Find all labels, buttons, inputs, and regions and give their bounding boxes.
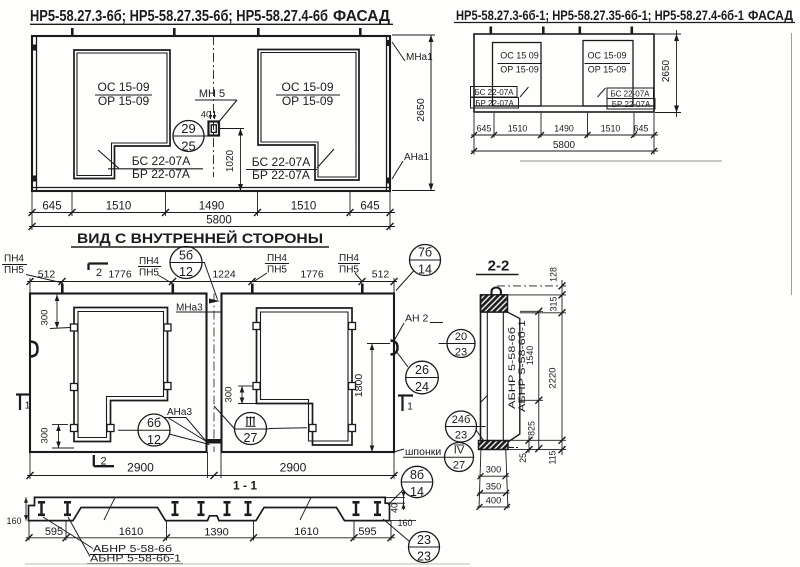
svg-text:ОР 15-09: ОР 15-09 — [588, 65, 627, 75]
svg-text:595: 595 — [358, 526, 376, 538]
svg-text:ПН5: ПН5 — [139, 268, 159, 279]
svg-text:АБНР 5-58-6б: АБНР 5-58-6б — [507, 327, 517, 409]
svg-text:40: 40 — [390, 503, 400, 513]
svg-text:128: 128 — [549, 267, 559, 282]
svg-text:ФАСАД: ФАСАД — [333, 8, 390, 25]
svg-text:НР5-58.27.3-6б-1; НР5-58.27.35: НР5-58.27.3-6б-1; НР5-58.27.35-6б-1; НР5… — [456, 7, 744, 23]
svg-text:1776: 1776 — [108, 269, 132, 281]
svg-text:БС 22-07А: БС 22-07А — [611, 90, 651, 99]
svg-text:29: 29 — [181, 121, 195, 136]
svg-text:АНа1: АНа1 — [404, 152, 429, 163]
svg-text:645: 645 — [634, 124, 649, 134]
svg-text:512: 512 — [372, 269, 390, 281]
svg-text:БС 22-07А: БС 22-07А — [475, 88, 515, 97]
svg-text:825: 825 — [527, 421, 537, 436]
svg-text:1020: 1020 — [225, 149, 236, 172]
svg-text:1610: 1610 — [294, 526, 318, 538]
svg-text:БР 22-07А: БР 22-07А — [612, 100, 651, 109]
svg-text:ПН5: ПН5 — [4, 265, 24, 276]
svg-text:МН 5: МН 5 — [199, 88, 225, 100]
svg-text:400: 400 — [486, 496, 502, 506]
svg-text:2650: 2650 — [661, 59, 672, 82]
svg-text:ПН5: ПН5 — [267, 265, 287, 276]
svg-text:5800: 5800 — [206, 215, 232, 227]
svg-text:300: 300 — [486, 465, 502, 475]
svg-text:350: 350 — [486, 482, 502, 492]
svg-text:АБНР 5-58-6б-1: АБНР 5-58-6б-1 — [90, 553, 182, 565]
svg-text:ОР 15-09: ОР 15-09 — [98, 94, 150, 108]
svg-text:26: 26 — [415, 363, 429, 377]
svg-text:115: 115 — [548, 450, 558, 464]
svg-text:14: 14 — [418, 263, 432, 277]
svg-text:ОС 15-09: ОС 15-09 — [281, 80, 333, 94]
svg-text:2-2: 2-2 — [488, 258, 510, 275]
svg-text:6б: 6б — [147, 416, 161, 430]
svg-text:ФАСАД: ФАСАД — [748, 7, 793, 23]
svg-text:1510: 1510 — [601, 124, 621, 134]
svg-text:2900: 2900 — [127, 461, 154, 475]
svg-text:160: 160 — [6, 516, 21, 526]
svg-text:АН 2: АН 2 — [405, 313, 429, 325]
svg-text:5б: 5б — [179, 249, 193, 263]
svg-text:645: 645 — [477, 124, 492, 134]
svg-text:645: 645 — [360, 201, 379, 213]
svg-text:IV: IV — [454, 445, 465, 457]
svg-text:БС 22-07А: БС 22-07А — [132, 154, 190, 168]
svg-text:2: 2 — [100, 456, 106, 468]
svg-text:315: 315 — [549, 297, 559, 312]
svg-text:1390: 1390 — [204, 527, 228, 539]
svg-text:300: 300 — [40, 310, 51, 326]
svg-text:ПН4: ПН4 — [139, 256, 159, 267]
svg-text:ОС 15-09: ОС 15-09 — [97, 80, 149, 94]
svg-text:ОС 15 09: ОС 15 09 — [500, 51, 539, 61]
svg-text:23: 23 — [455, 430, 467, 442]
svg-text:МНа1: МНа1 — [406, 52, 433, 63]
svg-text:7б: 7б — [418, 246, 432, 260]
svg-text:512: 512 — [38, 269, 56, 281]
svg-text:24б: 24б — [452, 414, 471, 426]
svg-text:1800: 1800 — [353, 374, 365, 398]
svg-text:27: 27 — [453, 460, 465, 472]
svg-text:1490: 1490 — [554, 124, 574, 134]
svg-text:БР 22-07А: БР 22-07А — [252, 168, 310, 182]
svg-text:III: III — [245, 415, 255, 429]
svg-text:1510: 1510 — [508, 124, 528, 134]
svg-text:1610: 1610 — [119, 526, 143, 538]
svg-text:ПН4: ПН4 — [4, 254, 24, 265]
svg-text:2220: 2220 — [548, 367, 559, 388]
svg-text:23: 23 — [455, 347, 467, 359]
svg-text:1776: 1776 — [300, 269, 324, 281]
svg-text:ОР 15-09: ОР 15-09 — [500, 65, 539, 75]
svg-text:5800: 5800 — [553, 140, 576, 151]
svg-text:1 - 1: 1 - 1 — [233, 479, 257, 493]
svg-text:АНа3: АНа3 — [167, 407, 192, 418]
svg-text:ПН4: ПН4 — [339, 253, 359, 264]
svg-text:1510: 1510 — [291, 201, 317, 213]
svg-text:24: 24 — [415, 380, 429, 394]
svg-text:1510: 1510 — [106, 201, 132, 213]
svg-text:12: 12 — [147, 433, 161, 447]
svg-text:ОС 15-09: ОС 15-09 — [587, 51, 626, 61]
svg-text:2900: 2900 — [280, 461, 307, 475]
svg-text:8б: 8б — [410, 468, 424, 482]
svg-text:ОР 15-09: ОР 15-09 — [282, 94, 334, 108]
svg-text:НР5-58.27.3-6б; НР5-58.27.35-6: НР5-58.27.3-6б; НР5-58.27.35-6б; НР5-58.… — [30, 8, 328, 25]
svg-text:1: 1 — [407, 402, 413, 413]
svg-text:1224: 1224 — [212, 269, 236, 281]
svg-text:2: 2 — [96, 267, 102, 279]
svg-text:2650: 2650 — [415, 98, 427, 122]
svg-text:160: 160 — [397, 518, 412, 528]
svg-text:14: 14 — [410, 485, 424, 499]
svg-text:1540: 1540 — [525, 346, 535, 366]
svg-text:1: 1 — [25, 401, 31, 412]
svg-text:12: 12 — [179, 265, 193, 279]
svg-text:300: 300 — [40, 428, 51, 444]
svg-text:шпонки: шпонки — [405, 446, 441, 458]
svg-text:23: 23 — [417, 550, 431, 564]
svg-text:БС 22-07А: БС 22-07А — [252, 155, 310, 169]
svg-text:ВИД С ВНУТРЕННЕЙ СТОРОНЫ: ВИД С ВНУТРЕННЕЙ СТОРОНЫ — [77, 229, 323, 246]
svg-text:1490: 1490 — [199, 201, 225, 213]
svg-text:27: 27 — [244, 431, 258, 445]
svg-text:ПН4: ПН4 — [267, 253, 287, 264]
svg-text:БР 22-07А: БР 22-07А — [475, 99, 514, 108]
svg-text:25: 25 — [518, 453, 528, 463]
svg-text:300: 300 — [224, 387, 235, 403]
svg-text:23: 23 — [417, 533, 431, 547]
svg-text:645: 645 — [42, 201, 61, 213]
svg-text:20: 20 — [455, 331, 467, 343]
